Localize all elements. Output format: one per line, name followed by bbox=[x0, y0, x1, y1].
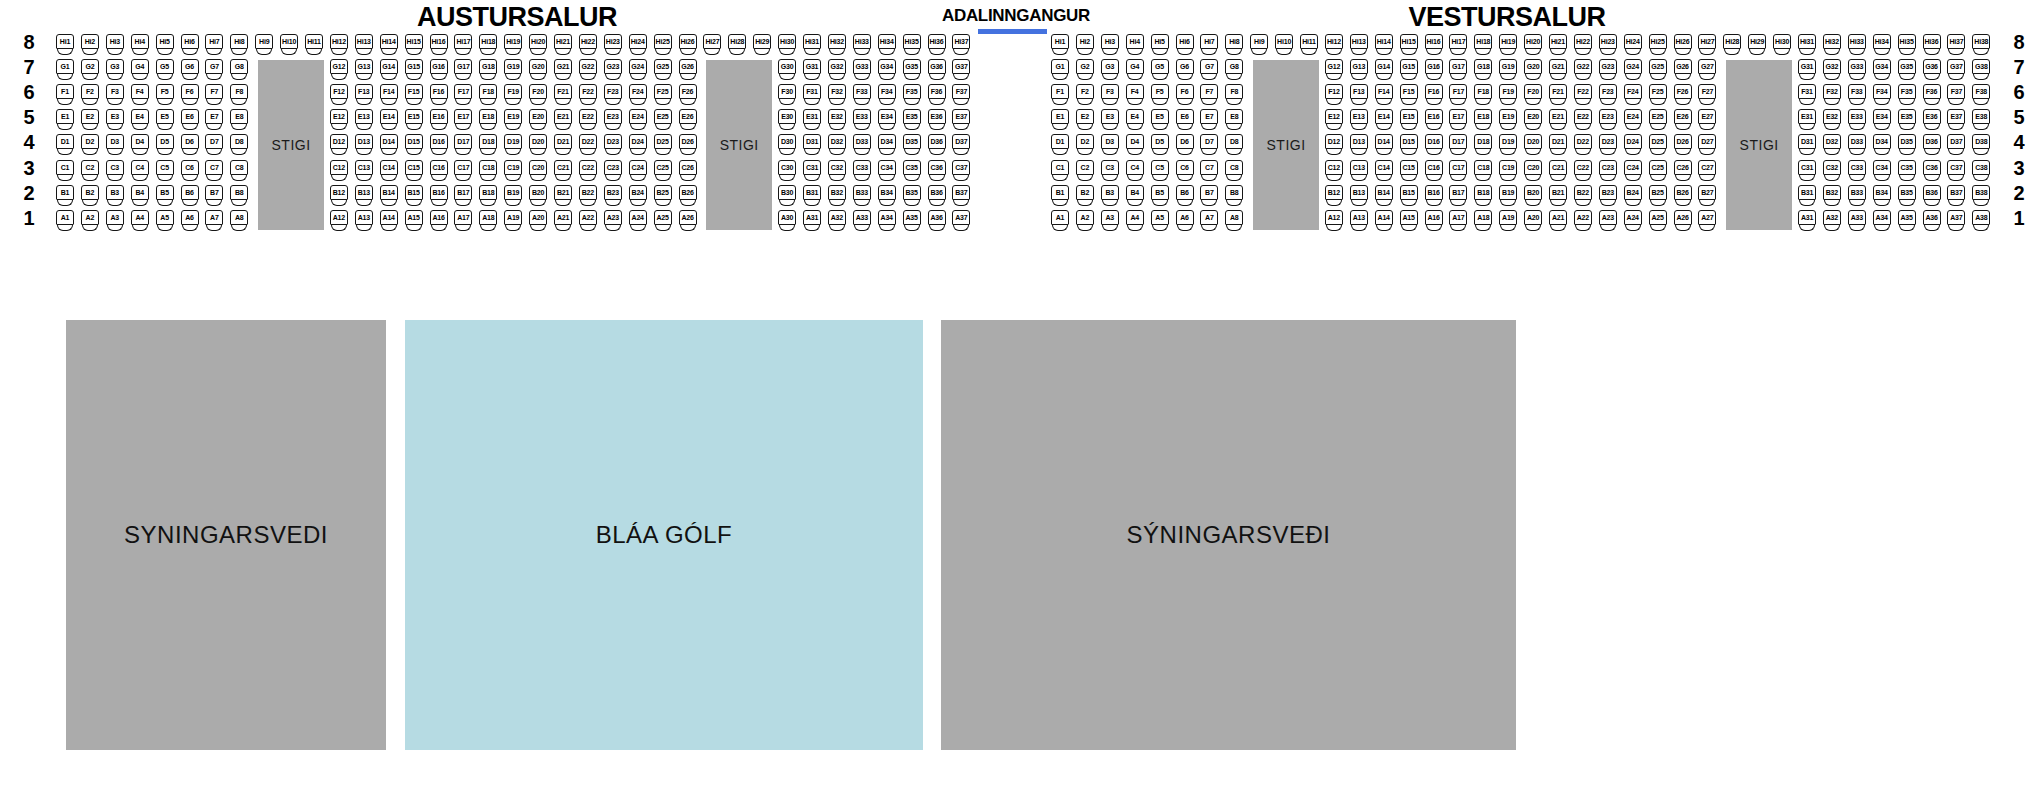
seat-C16[interactable]: C16 bbox=[430, 160, 448, 175]
seat-E37[interactable]: E37 bbox=[952, 109, 970, 124]
seat-F6[interactable]: F6 bbox=[181, 84, 199, 99]
seat-E2[interactable]: E2 bbox=[81, 109, 99, 124]
seat-Hi31[interactable]: Hi31 bbox=[1798, 34, 1816, 49]
seat-E38[interactable]: E38 bbox=[1972, 109, 1990, 124]
seat-E2[interactable]: E2 bbox=[1076, 109, 1094, 124]
seat-C8[interactable]: C8 bbox=[230, 160, 248, 175]
seat-G8[interactable]: G8 bbox=[230, 59, 248, 74]
seat-E19[interactable]: E19 bbox=[1499, 109, 1517, 124]
seat-A14[interactable]: A14 bbox=[1375, 210, 1393, 225]
seat-F13[interactable]: F13 bbox=[1350, 84, 1368, 99]
seat-G7[interactable]: G7 bbox=[205, 59, 223, 74]
seat-D27[interactable]: D27 bbox=[1698, 134, 1716, 149]
seat-Hi24[interactable]: Hi24 bbox=[1624, 34, 1642, 49]
seat-C15[interactable]: C15 bbox=[405, 160, 423, 175]
seat-G5[interactable]: G5 bbox=[156, 59, 174, 74]
seat-E5[interactable]: E5 bbox=[1151, 109, 1169, 124]
seat-Hi17[interactable]: Hi17 bbox=[454, 34, 472, 49]
seat-A6[interactable]: A6 bbox=[181, 210, 199, 225]
seat-G14[interactable]: G14 bbox=[380, 59, 398, 74]
seat-G22[interactable]: G22 bbox=[1574, 59, 1592, 74]
seat-Hi35[interactable]: Hi35 bbox=[1898, 34, 1916, 49]
seat-A22[interactable]: A22 bbox=[1574, 210, 1592, 225]
seat-B33[interactable]: B33 bbox=[853, 185, 871, 200]
seat-D33[interactable]: D33 bbox=[853, 134, 871, 149]
seat-A4[interactable]: A4 bbox=[131, 210, 149, 225]
seat-F36[interactable]: F36 bbox=[1923, 84, 1941, 99]
seat-D19[interactable]: D19 bbox=[1499, 134, 1517, 149]
seat-F3[interactable]: F3 bbox=[106, 84, 124, 99]
seat-F4[interactable]: F4 bbox=[131, 84, 149, 99]
seat-D35[interactable]: D35 bbox=[903, 134, 921, 149]
seat-G31[interactable]: G31 bbox=[1798, 59, 1816, 74]
seat-A21[interactable]: A21 bbox=[1549, 210, 1567, 225]
seat-F14[interactable]: F14 bbox=[380, 84, 398, 99]
seat-F26[interactable]: F26 bbox=[1674, 84, 1692, 99]
blue-floor-area[interactable]: BLÁA GÓLF bbox=[405, 320, 923, 750]
seat-F22[interactable]: F22 bbox=[579, 84, 597, 99]
seat-F15[interactable]: F15 bbox=[1400, 84, 1418, 99]
seat-Hi20[interactable]: Hi20 bbox=[1524, 34, 1542, 49]
seat-B32[interactable]: B32 bbox=[828, 185, 846, 200]
seat-Hi6[interactable]: Hi6 bbox=[1176, 34, 1194, 49]
seat-G38[interactable]: G38 bbox=[1972, 59, 1990, 74]
seat-B15[interactable]: B15 bbox=[1400, 185, 1418, 200]
seat-A26[interactable]: A26 bbox=[1674, 210, 1692, 225]
seat-G12[interactable]: G12 bbox=[1325, 59, 1343, 74]
seat-Hi17[interactable]: Hi17 bbox=[1449, 34, 1467, 49]
seat-A30[interactable]: A30 bbox=[778, 210, 796, 225]
seat-Hi31[interactable]: Hi31 bbox=[803, 34, 821, 49]
seat-C23[interactable]: C23 bbox=[604, 160, 622, 175]
seat-Hi7[interactable]: Hi7 bbox=[205, 34, 223, 49]
seat-A2[interactable]: A2 bbox=[81, 210, 99, 225]
seat-A8[interactable]: A8 bbox=[1225, 210, 1243, 225]
seat-G7[interactable]: G7 bbox=[1200, 59, 1218, 74]
seat-A7[interactable]: A7 bbox=[1200, 210, 1218, 225]
seat-B24[interactable]: B24 bbox=[629, 185, 647, 200]
seat-C2[interactable]: C2 bbox=[81, 160, 99, 175]
seat-C18[interactable]: C18 bbox=[479, 160, 497, 175]
seat-F2[interactable]: F2 bbox=[1076, 84, 1094, 99]
seat-D31[interactable]: D31 bbox=[1798, 134, 1816, 149]
seat-E34[interactable]: E34 bbox=[878, 109, 896, 124]
seat-E6[interactable]: E6 bbox=[1176, 109, 1194, 124]
seat-G22[interactable]: G22 bbox=[579, 59, 597, 74]
seat-A3[interactable]: A3 bbox=[1101, 210, 1119, 225]
seat-D23[interactable]: D23 bbox=[604, 134, 622, 149]
seat-E37[interactable]: E37 bbox=[1947, 109, 1965, 124]
seat-F16[interactable]: F16 bbox=[1425, 84, 1443, 99]
seat-C35[interactable]: C35 bbox=[903, 160, 921, 175]
seat-C7[interactable]: C7 bbox=[1200, 160, 1218, 175]
seat-Hi25[interactable]: Hi25 bbox=[1649, 34, 1667, 49]
seat-Hi13[interactable]: Hi13 bbox=[1350, 34, 1368, 49]
seat-G2[interactable]: G2 bbox=[81, 59, 99, 74]
seat-A33[interactable]: A33 bbox=[853, 210, 871, 225]
seat-F7[interactable]: F7 bbox=[205, 84, 223, 99]
seat-G19[interactable]: G19 bbox=[1499, 59, 1517, 74]
seat-F19[interactable]: F19 bbox=[1499, 84, 1517, 99]
seat-Hi36[interactable]: Hi36 bbox=[928, 34, 946, 49]
seat-B5[interactable]: B5 bbox=[1151, 185, 1169, 200]
seat-F17[interactable]: F17 bbox=[454, 84, 472, 99]
seat-C3[interactable]: C3 bbox=[106, 160, 124, 175]
seat-A23[interactable]: A23 bbox=[604, 210, 622, 225]
seat-D34[interactable]: D34 bbox=[878, 134, 896, 149]
seat-G1[interactable]: G1 bbox=[1051, 59, 1069, 74]
seat-G31[interactable]: G31 bbox=[803, 59, 821, 74]
seat-D26[interactable]: D26 bbox=[679, 134, 697, 149]
seat-F26[interactable]: F26 bbox=[679, 84, 697, 99]
seat-F31[interactable]: F31 bbox=[803, 84, 821, 99]
seat-B34[interactable]: B34 bbox=[1873, 185, 1891, 200]
seat-G35[interactable]: G35 bbox=[903, 59, 921, 74]
seat-B19[interactable]: B19 bbox=[1499, 185, 1517, 200]
seat-E17[interactable]: E17 bbox=[1449, 109, 1467, 124]
seat-E14[interactable]: E14 bbox=[1375, 109, 1393, 124]
seat-D2[interactable]: D2 bbox=[1076, 134, 1094, 149]
seat-G15[interactable]: G15 bbox=[1400, 59, 1418, 74]
seat-Hi37[interactable]: Hi37 bbox=[1947, 34, 1965, 49]
seat-C34[interactable]: C34 bbox=[1873, 160, 1891, 175]
seat-Hi28[interactable]: Hi28 bbox=[1723, 34, 1741, 49]
seat-C37[interactable]: C37 bbox=[952, 160, 970, 175]
seat-Hi26[interactable]: Hi26 bbox=[679, 34, 697, 49]
seat-Hi34[interactable]: Hi34 bbox=[878, 34, 896, 49]
seat-D14[interactable]: D14 bbox=[1375, 134, 1393, 149]
seat-E33[interactable]: E33 bbox=[853, 109, 871, 124]
seat-G4[interactable]: G4 bbox=[1126, 59, 1144, 74]
seat-Hi16[interactable]: Hi16 bbox=[1425, 34, 1443, 49]
seat-Hi32[interactable]: Hi32 bbox=[828, 34, 846, 49]
seat-G18[interactable]: G18 bbox=[1474, 59, 1492, 74]
seat-B13[interactable]: B13 bbox=[355, 185, 373, 200]
seat-Hi1[interactable]: Hi1 bbox=[1051, 34, 1069, 49]
seat-E22[interactable]: E22 bbox=[1574, 109, 1592, 124]
seat-C8[interactable]: C8 bbox=[1225, 160, 1243, 175]
seat-E1[interactable]: E1 bbox=[1051, 109, 1069, 124]
seat-D15[interactable]: D15 bbox=[405, 134, 423, 149]
seat-G37[interactable]: G37 bbox=[1947, 59, 1965, 74]
seat-G26[interactable]: G26 bbox=[679, 59, 697, 74]
seat-C17[interactable]: C17 bbox=[1449, 160, 1467, 175]
seat-B27[interactable]: B27 bbox=[1698, 185, 1716, 200]
seat-C21[interactable]: C21 bbox=[554, 160, 572, 175]
seat-Hi34[interactable]: Hi34 bbox=[1873, 34, 1891, 49]
seat-F36[interactable]: F36 bbox=[928, 84, 946, 99]
seat-G26[interactable]: G26 bbox=[1674, 59, 1692, 74]
seat-E24[interactable]: E24 bbox=[1624, 109, 1642, 124]
seat-A16[interactable]: A16 bbox=[1425, 210, 1443, 225]
seat-G8[interactable]: G8 bbox=[1225, 59, 1243, 74]
seat-G13[interactable]: G13 bbox=[1350, 59, 1368, 74]
seat-C24[interactable]: C24 bbox=[629, 160, 647, 175]
seat-E15[interactable]: E15 bbox=[405, 109, 423, 124]
seat-F6[interactable]: F6 bbox=[1176, 84, 1194, 99]
seat-Hi33[interactable]: Hi33 bbox=[1848, 34, 1866, 49]
seat-G12[interactable]: G12 bbox=[330, 59, 348, 74]
seat-F18[interactable]: F18 bbox=[479, 84, 497, 99]
seat-B35[interactable]: B35 bbox=[903, 185, 921, 200]
seat-D19[interactable]: D19 bbox=[504, 134, 522, 149]
seat-C24[interactable]: C24 bbox=[1624, 160, 1642, 175]
seat-A18[interactable]: A18 bbox=[1474, 210, 1492, 225]
seat-G18[interactable]: G18 bbox=[479, 59, 497, 74]
seat-E21[interactable]: E21 bbox=[1549, 109, 1567, 124]
seat-D38[interactable]: D38 bbox=[1972, 134, 1990, 149]
seat-B22[interactable]: B22 bbox=[1574, 185, 1592, 200]
seat-B4[interactable]: B4 bbox=[1126, 185, 1144, 200]
seat-F7[interactable]: F7 bbox=[1200, 84, 1218, 99]
seat-E16[interactable]: E16 bbox=[1425, 109, 1443, 124]
seat-B20[interactable]: B20 bbox=[529, 185, 547, 200]
seat-G1[interactable]: G1 bbox=[56, 59, 74, 74]
seat-Hi25[interactable]: Hi25 bbox=[654, 34, 672, 49]
seat-F5[interactable]: F5 bbox=[156, 84, 174, 99]
seat-F2[interactable]: F2 bbox=[81, 84, 99, 99]
seat-D16[interactable]: D16 bbox=[430, 134, 448, 149]
seat-C36[interactable]: C36 bbox=[928, 160, 946, 175]
seat-F15[interactable]: F15 bbox=[405, 84, 423, 99]
seat-C20[interactable]: C20 bbox=[1524, 160, 1542, 175]
seat-B3[interactable]: B3 bbox=[1101, 185, 1119, 200]
seat-F38[interactable]: F38 bbox=[1972, 84, 1990, 99]
seat-A7[interactable]: A7 bbox=[205, 210, 223, 225]
seat-A36[interactable]: A36 bbox=[1923, 210, 1941, 225]
seat-E22[interactable]: E22 bbox=[579, 109, 597, 124]
seat-C26[interactable]: C26 bbox=[679, 160, 697, 175]
seat-D6[interactable]: D6 bbox=[1176, 134, 1194, 149]
seat-G2[interactable]: G2 bbox=[1076, 59, 1094, 74]
seat-F19[interactable]: F19 bbox=[504, 84, 522, 99]
seat-A19[interactable]: A19 bbox=[504, 210, 522, 225]
seat-G32[interactable]: G32 bbox=[1823, 59, 1841, 74]
seat-F25[interactable]: F25 bbox=[1649, 84, 1667, 99]
seat-D26[interactable]: D26 bbox=[1674, 134, 1692, 149]
seat-C31[interactable]: C31 bbox=[1798, 160, 1816, 175]
seat-B8[interactable]: B8 bbox=[1225, 185, 1243, 200]
seat-C33[interactable]: C33 bbox=[853, 160, 871, 175]
seat-E5[interactable]: E5 bbox=[156, 109, 174, 124]
seat-E15[interactable]: E15 bbox=[1400, 109, 1418, 124]
seat-D3[interactable]: D3 bbox=[1101, 134, 1119, 149]
seat-C18[interactable]: C18 bbox=[1474, 160, 1492, 175]
seat-E27[interactable]: E27 bbox=[1698, 109, 1716, 124]
seat-C14[interactable]: C14 bbox=[1375, 160, 1393, 175]
seat-F23[interactable]: F23 bbox=[1599, 84, 1617, 99]
seat-B37[interactable]: B37 bbox=[1947, 185, 1965, 200]
seat-D5[interactable]: D5 bbox=[156, 134, 174, 149]
seat-G19[interactable]: G19 bbox=[504, 59, 522, 74]
seat-F30[interactable]: F30 bbox=[778, 84, 796, 99]
seat-F32[interactable]: F32 bbox=[1823, 84, 1841, 99]
seat-A2[interactable]: A2 bbox=[1076, 210, 1094, 225]
seat-A8[interactable]: A8 bbox=[230, 210, 248, 225]
seat-E32[interactable]: E32 bbox=[828, 109, 846, 124]
seat-C6[interactable]: C6 bbox=[1176, 160, 1194, 175]
seat-A1[interactable]: A1 bbox=[56, 210, 74, 225]
seat-B1[interactable]: B1 bbox=[1051, 185, 1069, 200]
seat-B21[interactable]: B21 bbox=[1549, 185, 1567, 200]
seat-B36[interactable]: B36 bbox=[1923, 185, 1941, 200]
seat-D7[interactable]: D7 bbox=[205, 134, 223, 149]
seat-F35[interactable]: F35 bbox=[1898, 84, 1916, 99]
seat-Hi9[interactable]: Hi9 bbox=[1250, 34, 1268, 49]
seat-D36[interactable]: D36 bbox=[1923, 134, 1941, 149]
seat-Hi35[interactable]: Hi35 bbox=[903, 34, 921, 49]
seat-D35[interactable]: D35 bbox=[1898, 134, 1916, 149]
seat-E6[interactable]: E6 bbox=[181, 109, 199, 124]
seat-B3[interactable]: B3 bbox=[106, 185, 124, 200]
seat-B34[interactable]: B34 bbox=[878, 185, 896, 200]
seat-B23[interactable]: B23 bbox=[604, 185, 622, 200]
seat-G17[interactable]: G17 bbox=[1449, 59, 1467, 74]
seat-A12[interactable]: A12 bbox=[330, 210, 348, 225]
seat-E25[interactable]: E25 bbox=[1649, 109, 1667, 124]
seat-G23[interactable]: G23 bbox=[604, 59, 622, 74]
seat-D24[interactable]: D24 bbox=[1624, 134, 1642, 149]
seat-A37[interactable]: A37 bbox=[952, 210, 970, 225]
seat-Hi19[interactable]: Hi19 bbox=[1499, 34, 1517, 49]
seat-A38[interactable]: A38 bbox=[1972, 210, 1990, 225]
seat-Hi30[interactable]: Hi30 bbox=[1773, 34, 1791, 49]
seat-A17[interactable]: A17 bbox=[454, 210, 472, 225]
seat-B7[interactable]: B7 bbox=[1200, 185, 1218, 200]
seat-Hi8[interactable]: Hi8 bbox=[1225, 34, 1243, 49]
seat-Hi5[interactable]: Hi5 bbox=[1151, 34, 1169, 49]
seat-F27[interactable]: F27 bbox=[1698, 84, 1716, 99]
seat-D4[interactable]: D4 bbox=[131, 134, 149, 149]
seat-B14[interactable]: B14 bbox=[1375, 185, 1393, 200]
seat-B36[interactable]: B36 bbox=[928, 185, 946, 200]
seat-C6[interactable]: C6 bbox=[181, 160, 199, 175]
seat-F17[interactable]: F17 bbox=[1449, 84, 1467, 99]
seat-Hi13[interactable]: Hi13 bbox=[355, 34, 373, 49]
seat-D13[interactable]: D13 bbox=[355, 134, 373, 149]
seat-G24[interactable]: G24 bbox=[629, 59, 647, 74]
seat-C3[interactable]: C3 bbox=[1101, 160, 1119, 175]
seat-B2[interactable]: B2 bbox=[81, 185, 99, 200]
seat-D32[interactable]: D32 bbox=[828, 134, 846, 149]
seat-C32[interactable]: C32 bbox=[1823, 160, 1841, 175]
seat-A31[interactable]: A31 bbox=[803, 210, 821, 225]
seat-F24[interactable]: F24 bbox=[629, 84, 647, 99]
seat-B26[interactable]: B26 bbox=[679, 185, 697, 200]
seat-G17[interactable]: G17 bbox=[454, 59, 472, 74]
seat-Hi4[interactable]: Hi4 bbox=[1126, 34, 1144, 49]
seat-E36[interactable]: E36 bbox=[928, 109, 946, 124]
seat-B37[interactable]: B37 bbox=[952, 185, 970, 200]
seat-F21[interactable]: F21 bbox=[554, 84, 572, 99]
seat-F13[interactable]: F13 bbox=[355, 84, 373, 99]
seat-B12[interactable]: B12 bbox=[1325, 185, 1343, 200]
seat-C23[interactable]: C23 bbox=[1599, 160, 1617, 175]
seat-A32[interactable]: A32 bbox=[828, 210, 846, 225]
seat-F24[interactable]: F24 bbox=[1624, 84, 1642, 99]
seat-G21[interactable]: G21 bbox=[1549, 59, 1567, 74]
seat-C5[interactable]: C5 bbox=[1151, 160, 1169, 175]
seat-Hi10[interactable]: Hi10 bbox=[280, 34, 298, 49]
seat-G5[interactable]: G5 bbox=[1151, 59, 1169, 74]
seat-E4[interactable]: E4 bbox=[1126, 109, 1144, 124]
seat-Hi11[interactable]: Hi11 bbox=[1300, 34, 1318, 49]
seat-F33[interactable]: F33 bbox=[853, 84, 871, 99]
seat-B24[interactable]: B24 bbox=[1624, 185, 1642, 200]
seat-D14[interactable]: D14 bbox=[380, 134, 398, 149]
seat-A14[interactable]: A14 bbox=[380, 210, 398, 225]
seat-E20[interactable]: E20 bbox=[1524, 109, 1542, 124]
seat-F20[interactable]: F20 bbox=[529, 84, 547, 99]
seat-G24[interactable]: G24 bbox=[1624, 59, 1642, 74]
seat-C35[interactable]: C35 bbox=[1898, 160, 1916, 175]
seat-E14[interactable]: E14 bbox=[380, 109, 398, 124]
seat-G27[interactable]: G27 bbox=[1698, 59, 1716, 74]
seat-E8[interactable]: E8 bbox=[230, 109, 248, 124]
seat-Hi6[interactable]: Hi6 bbox=[181, 34, 199, 49]
seat-A20[interactable]: A20 bbox=[529, 210, 547, 225]
seat-D8[interactable]: D8 bbox=[1225, 134, 1243, 149]
seat-C13[interactable]: C13 bbox=[1350, 160, 1368, 175]
seat-E25[interactable]: E25 bbox=[654, 109, 672, 124]
seat-E18[interactable]: E18 bbox=[1474, 109, 1492, 124]
seat-F16[interactable]: F16 bbox=[430, 84, 448, 99]
seat-A1[interactable]: A1 bbox=[1051, 210, 1069, 225]
seat-Hi2[interactable]: Hi2 bbox=[1076, 34, 1094, 49]
seat-C13[interactable]: C13 bbox=[355, 160, 373, 175]
seat-B13[interactable]: B13 bbox=[1350, 185, 1368, 200]
seat-C22[interactable]: C22 bbox=[1574, 160, 1592, 175]
seat-B33[interactable]: B33 bbox=[1848, 185, 1866, 200]
seat-C27[interactable]: C27 bbox=[1698, 160, 1716, 175]
seat-E23[interactable]: E23 bbox=[1599, 109, 1617, 124]
seat-A33[interactable]: A33 bbox=[1848, 210, 1866, 225]
seat-C17[interactable]: C17 bbox=[454, 160, 472, 175]
seat-C25[interactable]: C25 bbox=[654, 160, 672, 175]
seat-E26[interactable]: E26 bbox=[679, 109, 697, 124]
seat-A34[interactable]: A34 bbox=[878, 210, 896, 225]
seat-E31[interactable]: E31 bbox=[803, 109, 821, 124]
seat-D1[interactable]: D1 bbox=[1051, 134, 1069, 149]
seat-Hi18[interactable]: Hi18 bbox=[1474, 34, 1492, 49]
seat-Hi20[interactable]: Hi20 bbox=[529, 34, 547, 49]
seat-B22[interactable]: B22 bbox=[579, 185, 597, 200]
seat-A26[interactable]: A26 bbox=[679, 210, 697, 225]
seat-D22[interactable]: D22 bbox=[1574, 134, 1592, 149]
seat-A27[interactable]: A27 bbox=[1698, 210, 1716, 225]
seat-E33[interactable]: E33 bbox=[1848, 109, 1866, 124]
seat-G25[interactable]: G25 bbox=[654, 59, 672, 74]
seat-A35[interactable]: A35 bbox=[903, 210, 921, 225]
seat-Hi21[interactable]: Hi21 bbox=[554, 34, 572, 49]
seat-C1[interactable]: C1 bbox=[1051, 160, 1069, 175]
seat-D17[interactable]: D17 bbox=[454, 134, 472, 149]
seat-D1[interactable]: D1 bbox=[56, 134, 74, 149]
seat-C16[interactable]: C16 bbox=[1425, 160, 1443, 175]
seat-E12[interactable]: E12 bbox=[1325, 109, 1343, 124]
seat-G16[interactable]: G16 bbox=[430, 59, 448, 74]
seat-E34[interactable]: E34 bbox=[1873, 109, 1891, 124]
seat-D37[interactable]: D37 bbox=[1947, 134, 1965, 149]
seat-A24[interactable]: A24 bbox=[629, 210, 647, 225]
seat-B5[interactable]: B5 bbox=[156, 185, 174, 200]
seat-C19[interactable]: C19 bbox=[504, 160, 522, 175]
seat-Hi28[interactable]: Hi28 bbox=[728, 34, 746, 49]
seat-D15[interactable]: D15 bbox=[1400, 134, 1418, 149]
seat-G32[interactable]: G32 bbox=[828, 59, 846, 74]
seat-G35[interactable]: G35 bbox=[1898, 59, 1916, 74]
seat-D33[interactable]: D33 bbox=[1848, 134, 1866, 149]
